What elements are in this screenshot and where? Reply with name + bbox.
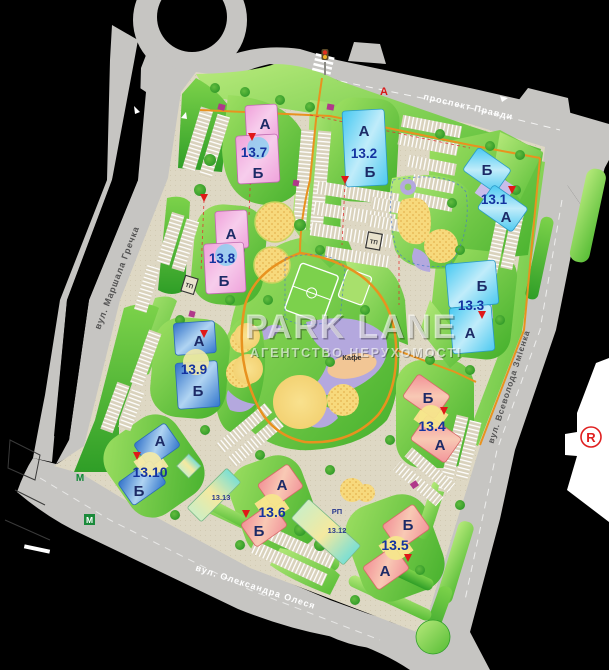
svg-text:Б: Б: [482, 162, 493, 179]
svg-text:13.3: 13.3: [458, 298, 485, 313]
svg-text:13.13: 13.13: [212, 493, 231, 502]
svg-text:Б: Б: [254, 523, 265, 540]
svg-text:13.10: 13.10: [132, 464, 167, 480]
svg-text:А: А: [226, 226, 237, 243]
svg-text:Б: Б: [134, 483, 145, 500]
svg-text:А: А: [277, 477, 288, 494]
svg-text:13.4: 13.4: [418, 418, 445, 434]
svg-text:А: А: [501, 209, 512, 226]
svg-text:АГЕНТСТВО НЕРУХОМОСТІ: АГЕНТСТВО НЕРУХОМОСТІ: [250, 346, 462, 360]
svg-text:М: М: [76, 473, 84, 484]
svg-text:А: А: [260, 116, 271, 133]
svg-text:13.12: 13.12: [328, 526, 347, 535]
svg-text:Б: Б: [365, 164, 376, 181]
svg-text:Б: Б: [193, 383, 204, 400]
svg-text:А: А: [380, 563, 391, 580]
svg-text:13.6: 13.6: [258, 504, 285, 520]
svg-text:А: А: [155, 433, 166, 450]
svg-text:А: А: [435, 437, 446, 454]
svg-text:13.9: 13.9: [181, 362, 207, 377]
svg-text:Б: Б: [423, 390, 434, 407]
svg-text:13.8: 13.8: [209, 251, 236, 266]
svg-text:Б: Б: [219, 273, 230, 290]
svg-text:М: М: [86, 515, 93, 525]
svg-text:Б: Б: [477, 278, 488, 295]
svg-text:13.2: 13.2: [351, 146, 377, 161]
svg-text:А: А: [359, 123, 370, 140]
svg-text:Б: Б: [403, 517, 414, 534]
svg-text:13.1: 13.1: [481, 192, 508, 207]
svg-text:Б: Б: [253, 165, 264, 182]
svg-text:13.7: 13.7: [241, 145, 267, 160]
svg-text:РП: РП: [332, 507, 342, 516]
svg-text:А: А: [465, 325, 476, 342]
svg-text:R: R: [586, 430, 596, 445]
svg-text:А: А: [380, 86, 388, 98]
svg-text:PARK LANE: PARK LANE: [245, 308, 457, 346]
svg-text:13.5: 13.5: [381, 537, 408, 553]
